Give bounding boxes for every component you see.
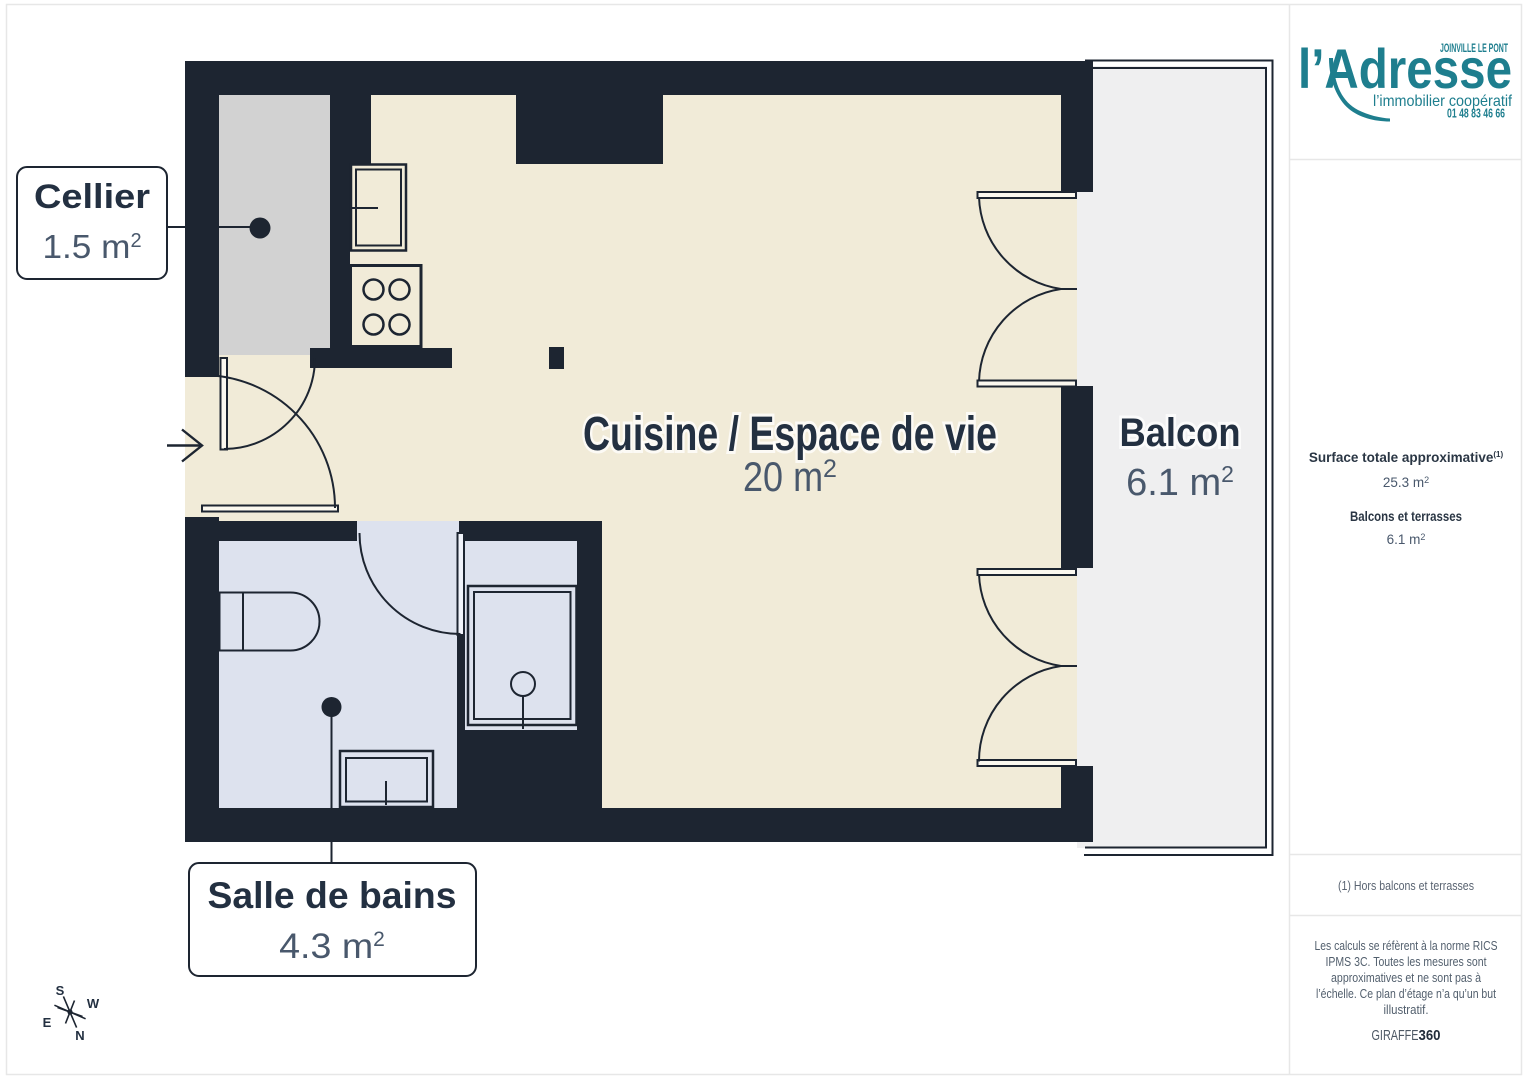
- svg-text:Les calculs se réfèrent à la n: Les calculs se réfèrent à la norme RICS: [1315, 939, 1498, 953]
- svg-text:l’échelle. Ce plan d’étage n’a: l’échelle. Ce plan d’étage n’a qu’un but: [1316, 987, 1496, 1001]
- svg-text:25.3 m2: 25.3 m2: [1383, 475, 1429, 490]
- svg-text:IPMS 3C. Toutes les mesures so: IPMS 3C. Toutes les mesures sont: [1326, 955, 1487, 969]
- svg-text:illustratif.: illustratif.: [1384, 1003, 1429, 1017]
- svg-text:E: E: [43, 1015, 52, 1030]
- svg-text:01 48 83 46 66: 01 48 83 46 66: [1447, 107, 1505, 121]
- svg-text:S: S: [56, 983, 65, 998]
- svg-text:6.1 m2: 6.1 m2: [1126, 461, 1234, 504]
- svg-text:Surface totale approximative(1: Surface totale approximative(1): [1309, 450, 1504, 465]
- svg-text:6.1 m2: 6.1 m2: [1387, 532, 1426, 547]
- svg-text:(1) Hors balcons et terrasses: (1) Hors balcons et terrasses: [1338, 879, 1474, 893]
- svg-text:Salle de bains: Salle de bains: [208, 875, 457, 916]
- svg-text:Balcons et terrasses: Balcons et terrasses: [1350, 509, 1462, 524]
- svg-text:W: W: [87, 996, 100, 1011]
- svg-text:20 m2: 20 m2: [743, 453, 837, 500]
- svg-text:approximatives et ne sont pas: approximatives et ne sont pas à: [1331, 971, 1481, 985]
- svg-text:GIRAFFE360: GIRAFFE360: [1372, 1028, 1441, 1044]
- svg-text:Cellier: Cellier: [34, 178, 150, 216]
- svg-text:Balcon: Balcon: [1120, 411, 1241, 455]
- svg-text:4.3 m2: 4.3 m2: [279, 927, 385, 966]
- svg-text:N: N: [75, 1028, 84, 1043]
- svg-text:1.5 m2: 1.5 m2: [42, 228, 141, 265]
